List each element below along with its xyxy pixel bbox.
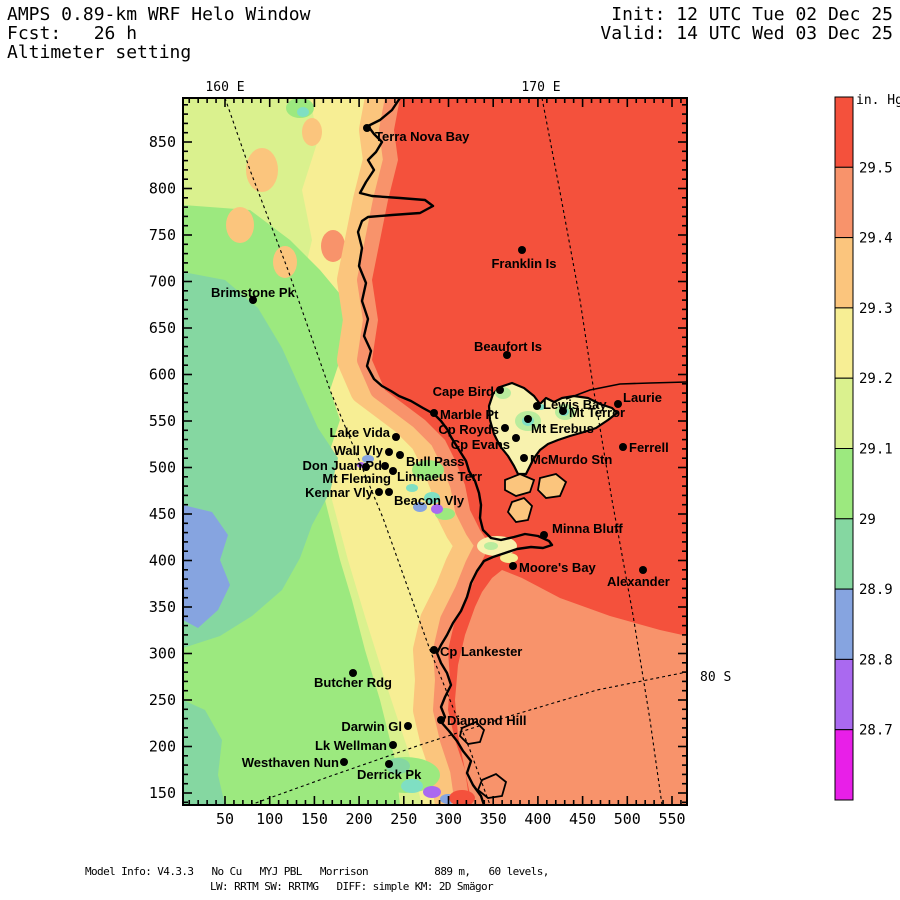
colorbar-tick-label: 29.1 bbox=[859, 442, 893, 458]
x-axis-label: 100 bbox=[256, 810, 283, 828]
geo-label: 80 S bbox=[700, 670, 731, 685]
station-dot bbox=[540, 531, 548, 539]
y-axis-label: 550 bbox=[149, 412, 176, 430]
station-dot bbox=[533, 402, 541, 410]
station-label: Mt Erebus bbox=[531, 421, 594, 436]
colorbar-segment bbox=[835, 308, 853, 378]
model-info-line1: Model Info: V4.3.3 No Cu MYJ PBL Morriso… bbox=[85, 865, 549, 878]
station-dot bbox=[520, 454, 528, 462]
colorbar-segment bbox=[835, 378, 853, 448]
map-canvas: 5010015020025030035040045050055015020025… bbox=[0, 0, 900, 900]
model-info-line2: LW: RRTM SW: RRTMG DIFF: simple KM: 2D S… bbox=[210, 880, 493, 893]
station-label: Cp Evans bbox=[451, 437, 510, 452]
geo-label: 170 E bbox=[521, 80, 560, 95]
station-dot bbox=[404, 722, 412, 730]
station-label: Terra Nova Bay bbox=[375, 129, 470, 144]
colorbar: 29.529.429.329.229.12928.928.828.7in. Hg bbox=[835, 93, 900, 800]
station-dot bbox=[496, 386, 504, 394]
station-label: Cp Lankester bbox=[440, 644, 522, 659]
station-dot bbox=[385, 448, 393, 456]
station-label: Lk Wellman bbox=[315, 738, 387, 753]
station-label: Minna Bluff bbox=[552, 521, 623, 536]
station-label: Beacon Vly bbox=[394, 493, 465, 508]
station-dot bbox=[501, 424, 509, 432]
station-dot bbox=[619, 443, 627, 451]
station-label: McMurdo Stn bbox=[530, 452, 612, 467]
station-label: Laurie bbox=[623, 390, 662, 405]
station-dot bbox=[375, 488, 383, 496]
station-label: Beaufort Is bbox=[474, 339, 542, 354]
station-label: Cape Bird bbox=[433, 384, 494, 399]
station-label: Westhaven Nun bbox=[242, 755, 339, 770]
colorbar-tick-label: 28.7 bbox=[859, 723, 893, 739]
station-dot bbox=[430, 409, 438, 417]
station-label: Mt Fleming bbox=[322, 471, 391, 486]
y-axis-label: 250 bbox=[149, 691, 176, 709]
station-label: Darwin Gl bbox=[341, 719, 402, 734]
station-label: Ferrell bbox=[629, 440, 669, 455]
colorbar-segment bbox=[835, 238, 853, 308]
station-label: Moore's Bay bbox=[519, 560, 597, 575]
station-dot bbox=[362, 463, 370, 471]
colorbar-units-label: in. Hg bbox=[856, 93, 900, 108]
station-dot bbox=[381, 462, 389, 470]
y-axis-label: 300 bbox=[149, 645, 176, 663]
colorbar-tick-label: 29.5 bbox=[859, 160, 893, 176]
station-label: Kennar Vly bbox=[305, 485, 374, 500]
y-axis-label: 200 bbox=[149, 738, 176, 756]
colorbar-segment bbox=[835, 167, 853, 237]
colorbar-tick-label: 29.2 bbox=[859, 371, 893, 387]
x-axis-label: 50 bbox=[216, 810, 234, 828]
x-axis-label: 250 bbox=[390, 810, 417, 828]
x-axis-label: 350 bbox=[480, 810, 507, 828]
geo-label: 160 E bbox=[205, 80, 244, 95]
station-label: Wall Vly bbox=[334, 443, 384, 458]
colorbar-segment bbox=[835, 659, 853, 729]
station-dot bbox=[437, 716, 445, 724]
station-dot bbox=[518, 246, 526, 254]
y-axis-label: 750 bbox=[149, 226, 176, 244]
colorbar-segment bbox=[835, 730, 853, 800]
station-dot bbox=[385, 488, 393, 496]
amps-forecast-plot: AMPS 0.89-km WRF Helo Window Fcst: 26 h … bbox=[0, 0, 900, 900]
station-dot bbox=[396, 451, 404, 459]
y-axis-label: 150 bbox=[149, 784, 176, 802]
colorbar-segment bbox=[835, 589, 853, 659]
colorbar-tick-label: 29.3 bbox=[859, 301, 893, 317]
station-dot bbox=[340, 758, 348, 766]
y-axis-label: 800 bbox=[149, 180, 176, 198]
y-axis-label: 850 bbox=[149, 133, 176, 151]
header-left: AMPS 0.89-km WRF Helo Window Fcst: 26 h … bbox=[7, 5, 310, 62]
y-axis-label: 500 bbox=[149, 459, 176, 477]
station-dot bbox=[430, 646, 438, 654]
station-dot bbox=[512, 434, 520, 442]
station-label: Brimstone Pk bbox=[211, 285, 296, 300]
colorbar-segment bbox=[835, 519, 853, 589]
valid-time: Valid: 14 UTC Wed 03 Dec 25 bbox=[600, 24, 893, 43]
colorbar-tick-label: 29.4 bbox=[859, 231, 893, 247]
x-axis-label: 150 bbox=[301, 810, 328, 828]
station-dot bbox=[392, 433, 400, 441]
x-axis-label: 550 bbox=[658, 810, 685, 828]
station-label: Butcher Rdg bbox=[314, 675, 392, 690]
station-dot bbox=[363, 124, 371, 132]
station-label: Linnaeus Terr bbox=[397, 469, 482, 484]
x-axis-label: 300 bbox=[435, 810, 462, 828]
y-axis-label: 400 bbox=[149, 552, 176, 570]
station-label: Diamond Hill bbox=[447, 713, 526, 728]
x-axis-label: 200 bbox=[346, 810, 373, 828]
station-label: Bull Pass bbox=[406, 454, 465, 469]
header-right: Init: 12 UTC Tue 02 Dec 25 Valid: 14 UTC… bbox=[600, 5, 893, 43]
station-label: Marble Pt bbox=[440, 407, 499, 422]
x-axis-label: 500 bbox=[614, 810, 641, 828]
init-time: Init: 12 UTC Tue 02 Dec 25 bbox=[600, 5, 893, 24]
station-dot bbox=[559, 407, 567, 415]
x-axis-label: 450 bbox=[569, 810, 596, 828]
station-label: Lake Vida bbox=[330, 425, 391, 440]
station-dot bbox=[509, 562, 517, 570]
station-label: Alexander bbox=[607, 574, 670, 589]
x-axis-label: 400 bbox=[524, 810, 551, 828]
colorbar-tick-label: 29 bbox=[859, 512, 876, 528]
station-label: Franklin Is bbox=[491, 256, 556, 271]
y-axis-label: 350 bbox=[149, 598, 176, 616]
y-axis-label: 600 bbox=[149, 366, 176, 384]
plot-title: AMPS 0.89-km WRF Helo Window bbox=[7, 5, 310, 24]
colorbar-segment bbox=[835, 97, 853, 167]
field-name: Altimeter setting bbox=[7, 43, 310, 62]
station-dot bbox=[614, 400, 622, 408]
station-label: Derrick Pk bbox=[357, 767, 422, 782]
forecast-hour: Fcst: 26 h bbox=[7, 24, 310, 43]
station-dot bbox=[389, 741, 397, 749]
y-axis-label: 700 bbox=[149, 273, 176, 291]
y-axis-label: 450 bbox=[149, 505, 176, 523]
colorbar-tick-label: 28.9 bbox=[859, 582, 893, 598]
colorbar-tick-label: 28.8 bbox=[859, 652, 893, 668]
station-label: Cp Royds bbox=[438, 422, 499, 437]
station-dot bbox=[639, 566, 647, 574]
y-axis-label: 650 bbox=[149, 319, 176, 337]
colorbar-segment bbox=[835, 449, 853, 519]
